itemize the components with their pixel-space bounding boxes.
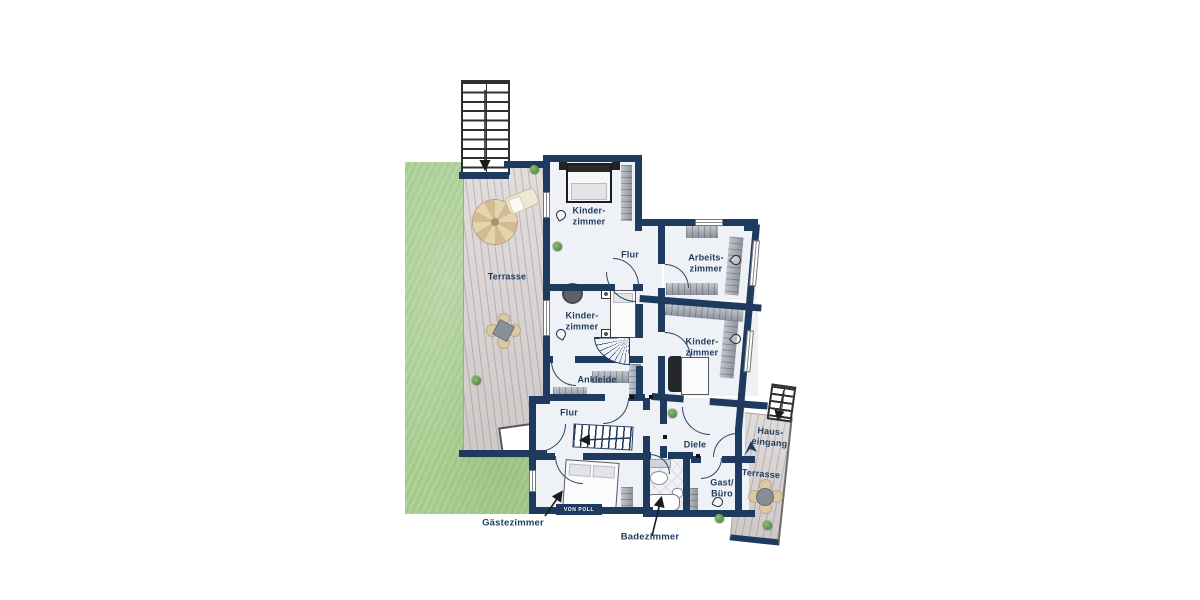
bed-headboard [668, 356, 681, 392]
wall [660, 396, 667, 424]
bed-kinderzimmer-right [681, 357, 709, 395]
wall [643, 398, 650, 410]
entrance-stairs [767, 383, 797, 422]
window [543, 300, 550, 336]
wall [658, 356, 665, 398]
stairs-rail [486, 82, 488, 173]
wall [459, 172, 509, 179]
window [695, 219, 723, 226]
label-hauseingang: Haus-eingang [751, 425, 789, 449]
exterior-top-stairs [461, 80, 510, 175]
nightstand [559, 161, 567, 170]
plant-icon [472, 376, 481, 385]
room-label-ankleide: Ankleide [577, 375, 616, 386]
wall [636, 304, 643, 338]
wardrobe [621, 165, 632, 221]
window [529, 470, 536, 492]
interior-stairs [572, 423, 633, 450]
wardrobe [686, 226, 718, 238]
room-label-kinderzimmer-right: Kinder-zimmer [686, 336, 719, 357]
bed-headboard [568, 165, 610, 172]
room-label-terrasse-left: Terrasse [488, 272, 526, 283]
window [543, 192, 550, 218]
wall [543, 155, 642, 162]
label-gaestezimmer: Gästezimmer [482, 517, 544, 528]
floor-plan: Terrasse Kinder-zimmer Flur Arbeits-zimm… [0, 0, 1200, 600]
wall [722, 456, 755, 463]
plant-icon [668, 409, 677, 418]
watermark-logo: VON POLL [556, 504, 602, 515]
room-label-kinderzimmer-mid: Kinder-zimmer [566, 310, 599, 331]
plant-icon [553, 242, 562, 251]
nightstand [612, 161, 620, 170]
bed-pillow [592, 465, 615, 479]
wall [643, 456, 650, 514]
room-label-flur-lower: Flur [560, 408, 578, 419]
parasol-pole [491, 218, 499, 226]
room-label-kinderzimmer-top: Kinder-zimmer [573, 205, 606, 226]
wall [459, 450, 547, 457]
wall [658, 226, 665, 264]
plant-icon [530, 165, 539, 174]
wall [543, 394, 605, 401]
wall [635, 155, 642, 231]
dresser [621, 487, 633, 509]
bed-blanket [571, 183, 607, 200]
room-label-flur-top: Flur [621, 250, 639, 261]
room-label-diele: Diele [684, 440, 707, 451]
wall [660, 446, 667, 458]
label-badezimmer: Badezimmer [621, 531, 680, 542]
wall [583, 453, 647, 460]
hinge-dot [663, 435, 667, 439]
room-label-arbeitszimmer: Arbeits-zimmer [688, 252, 724, 273]
wall [683, 452, 690, 514]
plant-icon [715, 514, 724, 523]
hinge-dot [649, 395, 653, 399]
wall [504, 161, 546, 168]
room-label-gast-buero: Gast/Büro [710, 477, 734, 498]
hinge-dot [630, 395, 634, 399]
plant-icon [763, 521, 772, 530]
wall [658, 300, 665, 332]
wall [543, 284, 615, 291]
terrace-table [756, 488, 774, 506]
stairs-rail [779, 387, 785, 419]
hinge-dot [696, 454, 700, 458]
